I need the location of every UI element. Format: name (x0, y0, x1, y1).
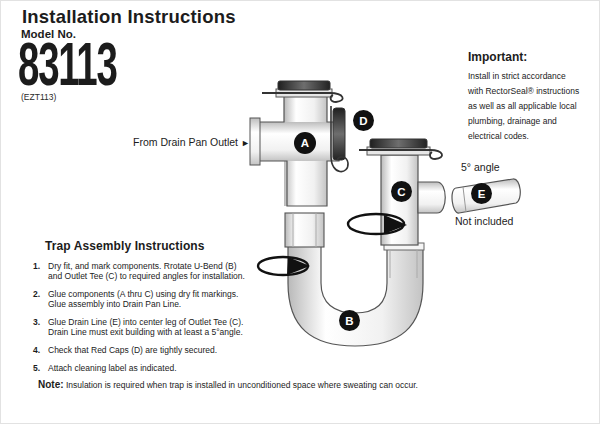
important-text-line: Install in strict accordance (468, 69, 590, 84)
instruction-step: 5. Attach cleaning label as indicated. (33, 363, 313, 373)
step-text: Attach cleaning label as indicated. (48, 363, 177, 373)
note-label: Note: (38, 379, 64, 390)
page-title: Installation Instructions (22, 6, 236, 28)
instruction-step: 3. Glue Drain Line (E) into center leg o… (33, 317, 313, 337)
part-badge-c: C (391, 181, 412, 202)
step-number: 2. (33, 289, 48, 309)
step-text: Glue assembly into Drain Pan Line. (48, 299, 238, 309)
instructions-heading: Trap Assembly Instructions (45, 239, 313, 253)
step-number: 1. (33, 261, 48, 281)
important-text-line: with RectorSeal® instructions (468, 84, 590, 99)
step-number: 3. (33, 317, 48, 337)
red-cap-top (278, 81, 330, 90)
part-badge-e: E (471, 183, 492, 204)
step-text: Dry fit, and mark components. Rrotate U-… (48, 261, 245, 271)
note-text: Insulation is required when trap is inst… (66, 380, 418, 390)
step-text: Drain Line must exit building with at le… (48, 327, 243, 337)
model-code: (EZT113) (21, 92, 56, 102)
instruction-step: 1. Dry fit, and mark components. Rrotate… (33, 261, 313, 281)
model-number: 83113 (18, 33, 117, 95)
inlet-label: From Drain Pan Outlet ► (133, 136, 250, 148)
part-badge-b: B (339, 310, 360, 331)
assembly-instructions: Trap Assembly Instructions 1. Dry fit, a… (33, 239, 313, 381)
part-badge-d: D (353, 110, 374, 131)
part-badge-a: A (294, 132, 316, 154)
step-number: 5. (33, 363, 48, 373)
inlet-label-text: From Drain Pan Outlet (133, 136, 238, 148)
instruction-step: 4. Check that Red Caps (D) are tightly s… (33, 345, 313, 355)
important-text-line: plumbing, drainage and (468, 114, 590, 129)
step-text: Check that Red Caps (D) are tightly secu… (48, 345, 217, 355)
step-text: Glue Drain Line (E) into center leg of O… (48, 317, 243, 327)
instruction-step: 2. Glue components (A thru C) using dry … (33, 289, 313, 309)
not-included-label: Not included (455, 215, 513, 227)
step-text: Glue components (A thru C) using dry fit… (48, 289, 238, 299)
note: Note: Insulation is required when trap i… (38, 379, 418, 390)
important-callout: Important: Install in strict accordance … (468, 50, 590, 144)
important-text-line: as well as all applicable local (468, 99, 590, 114)
instruction-sheet: Installation Instructions Model No. 8311… (0, 0, 600, 424)
red-cap-c (370, 139, 427, 148)
step-number: 4. (33, 345, 48, 355)
angle-label: 5° angle (461, 161, 500, 173)
rotate-arrow-tee (348, 214, 407, 234)
important-heading: Important: (468, 50, 590, 64)
red-cap-d (333, 108, 345, 160)
important-text-line: electrical codes. (468, 129, 590, 144)
right-arrow-icon: ► (241, 138, 250, 148)
step-text: and Outlet Tee (C) to required angles fo… (48, 271, 245, 281)
